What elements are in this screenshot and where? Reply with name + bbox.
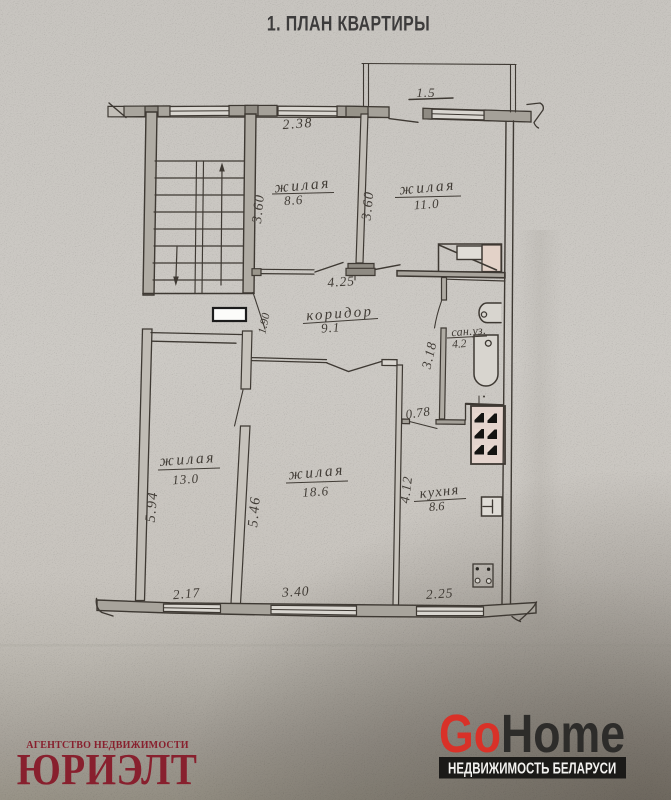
svg-text:13.0: 13.0 (172, 471, 200, 488)
svg-text:3.40: 3.40 (281, 583, 310, 599)
svg-text:4.2: 4.2 (452, 338, 467, 351)
svg-text:2.17: 2.17 (172, 585, 201, 602)
svg-text:2.38: 2.38 (282, 116, 313, 133)
svg-text:GoHome: GoHome (439, 704, 625, 764)
svg-text:4.25: 4.25 (327, 273, 356, 290)
svg-text:11.0: 11.0 (413, 196, 440, 213)
svg-text:1.5: 1.5 (416, 85, 435, 100)
svg-text:8.6: 8.6 (428, 499, 445, 514)
svg-text:3.60: 3.60 (250, 193, 268, 225)
svg-text:ЮРИЭЛТ: ЮРИЭЛТ (17, 746, 198, 795)
svg-text:9.1: 9.1 (321, 319, 341, 335)
svg-text:5.94: 5.94 (143, 490, 162, 523)
svg-text:5.46: 5.46 (245, 495, 264, 528)
svg-text:1. ПЛАН КВАРТИРЫ: 1. ПЛАН КВАРТИРЫ (267, 12, 430, 36)
svg-text:18.6: 18.6 (302, 483, 330, 500)
svg-text:2.25: 2.25 (425, 585, 454, 602)
svg-text:8.6: 8.6 (284, 192, 304, 208)
svg-text:НЕДВИЖИМОСТЬ БЕЛАРУСИ: НЕДВИЖИМОСТЬ БЕЛАРУСИ (448, 759, 616, 777)
svg-text:3.60: 3.60 (359, 190, 377, 222)
